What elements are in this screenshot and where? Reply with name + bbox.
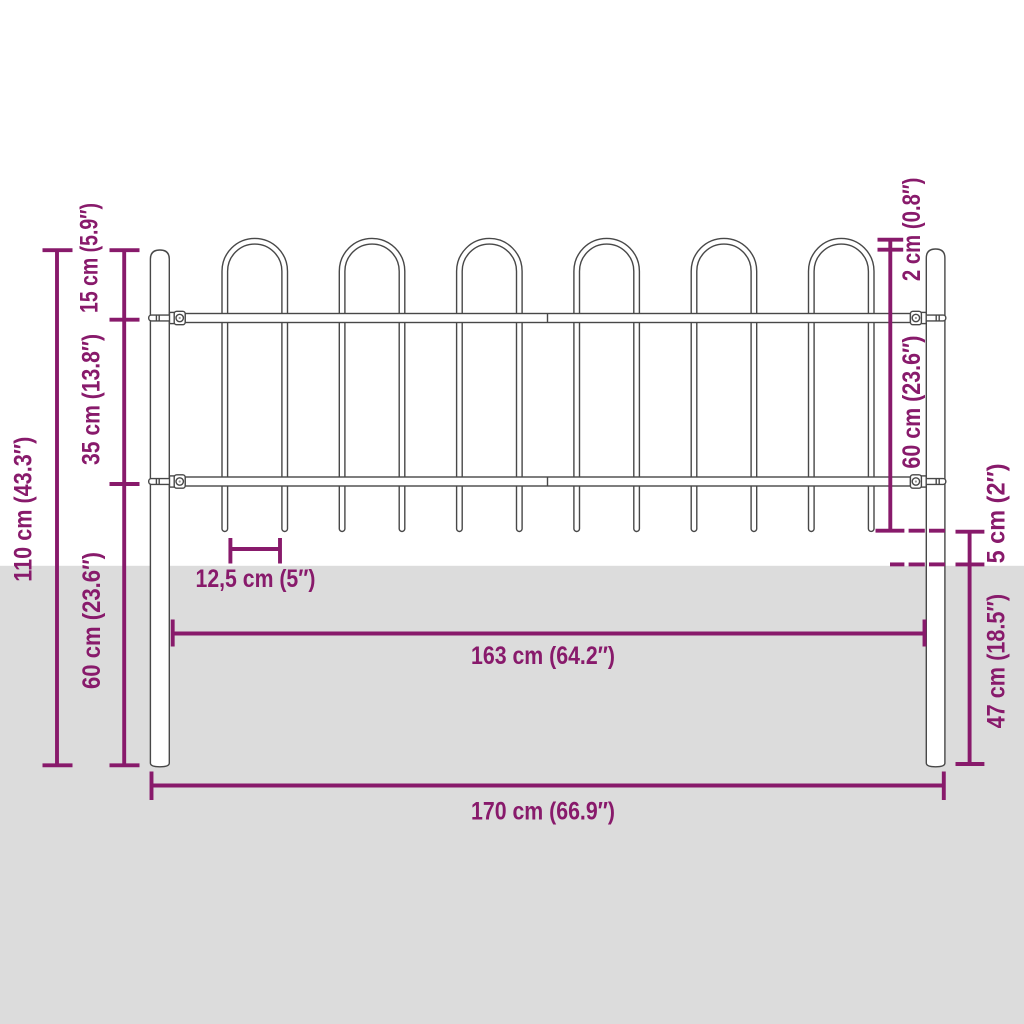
- svg-text:170 cm (66.9″): 170 cm (66.9″): [471, 798, 615, 826]
- svg-text:35 cm (13.8″): 35 cm (13.8″): [78, 334, 106, 465]
- svg-text:163 cm (64.2″): 163 cm (64.2″): [471, 642, 615, 670]
- svg-text:60 cm (23.6″): 60 cm (23.6″): [898, 336, 926, 469]
- svg-text:110 cm (43.3″): 110 cm (43.3″): [10, 437, 38, 582]
- svg-text:47 cm (18.5″): 47 cm (18.5″): [983, 594, 1011, 729]
- svg-text:60 cm (23.6″): 60 cm (23.6″): [78, 552, 106, 689]
- svg-text:5 cm (2″): 5 cm (2″): [983, 463, 1011, 563]
- svg-text:12,5 cm (5″): 12,5 cm (5″): [196, 565, 316, 593]
- svg-text:15 cm (5.9″): 15 cm (5.9″): [76, 203, 104, 313]
- svg-text:2 cm (0.8″): 2 cm (0.8″): [898, 178, 926, 282]
